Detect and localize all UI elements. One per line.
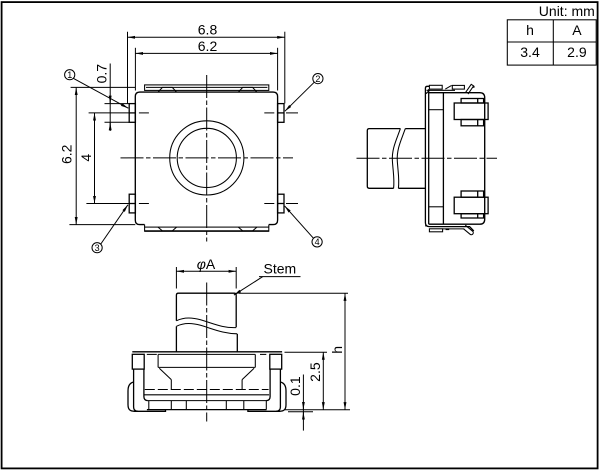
svg-text:h: h — [526, 22, 534, 38]
svg-text:4: 4 — [78, 154, 94, 162]
svg-text:2: 2 — [315, 74, 320, 84]
svg-text:2.9: 2.9 — [567, 44, 587, 60]
svg-text:3.4: 3.4 — [520, 44, 540, 60]
svg-text:h: h — [329, 346, 345, 354]
svg-text:1: 1 — [67, 70, 72, 80]
svg-text:0.1: 0.1 — [287, 376, 303, 396]
svg-text:Unit: mm: Unit: mm — [539, 3, 595, 19]
svg-text:6.8: 6.8 — [198, 22, 218, 38]
svg-text:6.2: 6.2 — [59, 144, 75, 164]
svg-text:φA: φA — [197, 256, 216, 272]
svg-text:A: A — [572, 22, 582, 38]
svg-text:6.2: 6.2 — [198, 38, 218, 54]
svg-text:2.5: 2.5 — [307, 362, 323, 382]
svg-text:Stem: Stem — [264, 260, 297, 276]
svg-text:3: 3 — [95, 243, 100, 253]
svg-text:4: 4 — [315, 237, 320, 247]
svg-text:0.7: 0.7 — [94, 64, 110, 84]
